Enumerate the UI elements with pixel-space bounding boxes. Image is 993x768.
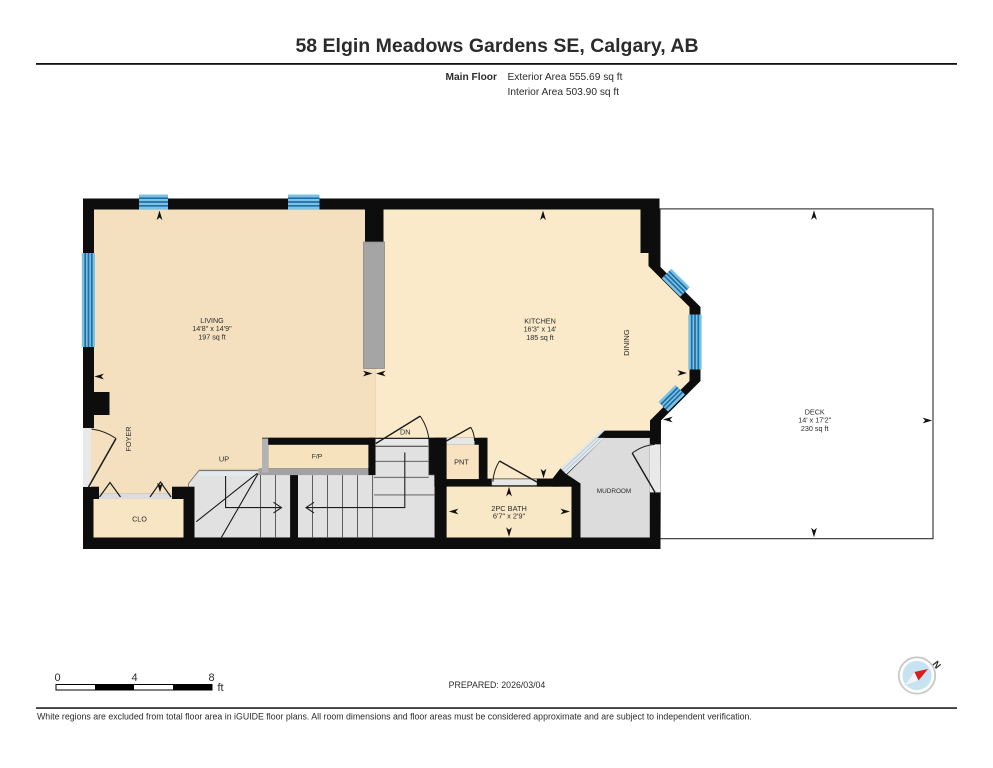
svg-text:0: 0 [54, 672, 60, 684]
svg-text:UP: UP [219, 455, 229, 464]
svg-text:PNT: PNT [454, 458, 469, 467]
svg-text:58 Elgin Meadows Gardens SE, C: 58 Elgin Meadows Gardens SE, Calgary, AB [295, 35, 698, 57]
svg-text:DN: DN [400, 427, 411, 436]
svg-text:4: 4 [131, 672, 137, 684]
svg-text:230 sq ft: 230 sq ft [801, 424, 829, 433]
svg-text:8: 8 [208, 672, 214, 684]
svg-text:CLO: CLO [132, 515, 147, 524]
svg-text:F/P: F/P [312, 453, 323, 460]
svg-text:Main Floor: Main Floor [446, 72, 498, 83]
svg-text:197 sq ft: 197 sq ft [198, 332, 226, 341]
svg-text:6'7" x 2'9": 6'7" x 2'9" [493, 512, 526, 521]
svg-text:ft: ft [218, 682, 224, 694]
svg-text:185 sq ft: 185 sq ft [526, 333, 554, 342]
svg-text:White regions are excluded fro: White regions are excluded from total fl… [37, 712, 752, 722]
svg-text:FOYER: FOYER [124, 426, 133, 451]
svg-text:PREPARED: 2026/03/04: PREPARED: 2026/03/04 [449, 680, 546, 690]
svg-text:Interior Area 503.90 sq ft: Interior Area 503.90 sq ft [508, 87, 620, 98]
svg-text:MUDROOM: MUDROOM [597, 488, 631, 495]
svg-text:DINING: DINING [622, 329, 631, 356]
svg-text:Exterior Area 555.69 sq ft: Exterior Area 555.69 sq ft [508, 72, 623, 83]
